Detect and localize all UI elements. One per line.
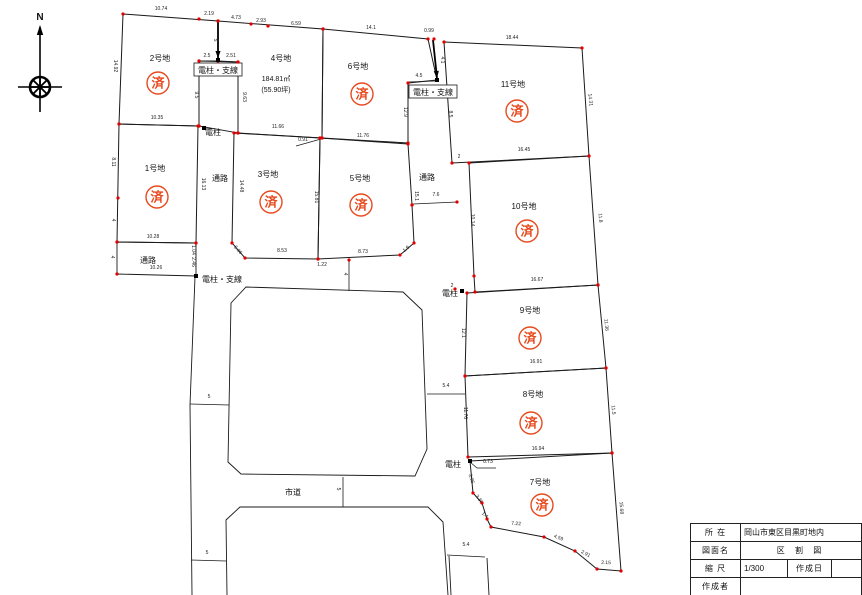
utility-pole-4 (468, 459, 472, 463)
dim-label-34: 8.5 (447, 111, 453, 118)
dim-label-17: 4 (110, 219, 116, 222)
survey-point (249, 22, 252, 25)
title-block: 所 在 岡山市東区目黒町地内 図面名 区 割 図 縮 尺 1/300 作成日 作… (690, 523, 862, 595)
plot-9-stamp-char: 済 (523, 331, 537, 346)
annotation-通路-1: 通路 (140, 255, 156, 265)
dim-label-44: 16.91 (530, 359, 543, 365)
dim-label-22: 11.76 (357, 133, 369, 139)
survey-point (453, 287, 456, 290)
dim-label-29: 8.53 (277, 248, 287, 254)
survey-point (587, 154, 590, 157)
annotation-電柱・支線-4: 電柱・支線 (194, 63, 242, 76)
scale-label: 縮 尺 (691, 560, 741, 578)
dim-label-33: 7.6 (433, 192, 440, 198)
block-upper (228, 287, 427, 476)
dim-label-46: 11.5 (610, 405, 617, 415)
survey-point (610, 451, 613, 454)
road-left-west-edge (190, 277, 195, 595)
utility-pole-0 (216, 58, 220, 62)
survey-point (320, 136, 323, 139)
plot-7-stamp-char: 済 (535, 498, 549, 513)
dim-label-21: 0.91 (298, 137, 308, 143)
plot-10-stamp-char: 済 (520, 224, 534, 239)
survey-point (406, 141, 409, 144)
annotation-label-2: 通路 (419, 172, 435, 182)
plot-1-label: 1号地 (145, 163, 165, 173)
dim-label-7: 18.44 (506, 35, 519, 41)
dim-label-25: 15.81 (313, 191, 319, 204)
plot-1-boundary (117, 124, 198, 243)
tick-line-1 (191, 560, 226, 561)
dim-label-20: 11.66 (272, 124, 284, 130)
dim-label-53: 2.91 (580, 549, 592, 559)
dim-label-0: 10.74 (155, 6, 168, 12)
tick-line-0 (190, 404, 229, 405)
annotation-市道-3: 市道 (285, 487, 301, 497)
plot-6-sold-stamp: 済 (351, 83, 373, 105)
tick-line-7 (408, 81, 435, 82)
dim-label-43: 11.36 (602, 319, 609, 332)
survey-point (465, 291, 468, 294)
survey-point (442, 40, 445, 43)
plot-6-stamp-char: 済 (355, 87, 369, 102)
plot-2-label: 2号地 (150, 53, 170, 63)
survey-point (485, 517, 488, 520)
annotation-label-1: 通路 (140, 255, 156, 265)
plot-7-label: 7号地 (530, 477, 550, 487)
dim-label-39: 11.8 (597, 213, 604, 223)
compass-n-label: N (36, 12, 43, 23)
tick-line-4 (447, 555, 485, 557)
dim-label-16: 8.11 (110, 157, 116, 167)
drawing-name-label: 図面名 (691, 542, 741, 560)
plot-2-stamp-char: 済 (151, 76, 165, 91)
author-value (741, 578, 862, 595)
survey-point (542, 535, 545, 538)
dim-label-5: 14.1 (366, 25, 376, 31)
survey-point (480, 501, 483, 504)
plot-4-label: 4号地 (271, 53, 291, 63)
annotation-label-6: 電柱・支線 (202, 274, 242, 284)
road-south-east-edge (487, 558, 489, 595)
dim-label-6: 0.99 (424, 28, 434, 34)
survey-point (604, 366, 607, 369)
dim-label-13: 9.5 (193, 92, 199, 99)
annotation-label-5: 電柱・支線 (413, 87, 453, 97)
survey-point (197, 124, 200, 127)
survey-point (197, 17, 200, 20)
plot-11-label: 11号地 (501, 79, 525, 89)
dim-label-62: 4 (342, 273, 348, 276)
title-row-location: 所 在 岡山市東区目黒町地内 (691, 524, 862, 542)
utility-pole-5 (194, 274, 198, 278)
plot-7: 7号地済 (470, 453, 621, 571)
plot-8-sold-stamp: 済 (520, 412, 542, 434)
annotation-通路-2: 通路 (419, 172, 435, 182)
survey-point (580, 46, 583, 49)
survey-point (596, 283, 599, 286)
plot-4-area-line-1: (55.90坪) (261, 86, 290, 94)
survey-point (194, 241, 197, 244)
dim-label-37: 2 (458, 154, 461, 160)
dim-label-27: 12.9 (402, 107, 408, 117)
plot-5-stamp-char: 済 (354, 198, 368, 213)
dim-label-19: 10.35 (151, 115, 164, 121)
annotation-label-3: 市道 (285, 487, 301, 497)
annotation-label-9: 電柱 (445, 459, 461, 469)
dim-label-10: 4.5 (416, 73, 423, 79)
dim-label-18: 4 (109, 256, 115, 259)
dim-label-31: 8.73 (358, 249, 368, 255)
plot-11-boundary (444, 42, 589, 163)
annotation-電柱-9: 電柱 (445, 459, 461, 469)
location-label: 所 在 (691, 524, 741, 542)
survey-point (117, 122, 120, 125)
plot-6-label: 6号地 (348, 61, 368, 71)
survey-point (232, 131, 235, 134)
dim-label-63: 10.28 (147, 234, 160, 240)
plot-1: 1号地済 (117, 124, 198, 243)
dim-label-4: 6.59 (291, 21, 301, 27)
survey-point (266, 24, 269, 27)
survey-point (619, 569, 622, 572)
scale-value: 1/300 (741, 560, 788, 578)
annotation-通路-0: 通路 (212, 173, 228, 183)
survey-point (410, 203, 413, 206)
dim-label-14: 9.63 (241, 92, 247, 102)
plot-1-stamp-char: 済 (150, 190, 164, 205)
block-lower (226, 507, 448, 595)
plot-8: 8号地済 (465, 368, 612, 457)
survey-point (467, 161, 470, 164)
plot-8-stamp-char: 済 (524, 416, 538, 431)
survey-point (426, 37, 429, 40)
guy-wire-arrow-0 (215, 51, 220, 58)
dim-label-64: 10.26 (150, 265, 163, 271)
survey-point (121, 12, 124, 15)
survey-point (115, 240, 118, 243)
dim-label-26: 15.1 (413, 191, 419, 201)
survey-point (472, 274, 475, 277)
annotation-電柱・支線-6: 電柱・支線 (202, 274, 242, 284)
dim-label-15: 14.92 (112, 60, 118, 73)
survey-point (471, 491, 474, 494)
plot-10: 10号地済 (469, 156, 598, 292)
compass-hub (37, 84, 42, 89)
plot-9-label: 9号地 (520, 305, 540, 315)
compass-arrow-icon (37, 25, 43, 35)
title-row-author: 作成者 (691, 578, 862, 595)
survey-point (316, 257, 319, 260)
dim-label-55: 15.68 (618, 501, 625, 514)
drawing-name-value: 区 割 図 (741, 542, 862, 560)
dim-label-9: 4.1 (439, 57, 445, 64)
survey-point (473, 290, 476, 293)
survey-point (347, 258, 350, 261)
plot-3: 3号地済 (232, 133, 320, 259)
dim-label-12: 2.51 (226, 53, 236, 59)
dim-label-51: 7.22 (511, 521, 521, 528)
dim-label-54: 2.15 (601, 560, 611, 566)
dim-label-1: 2.19 (204, 11, 214, 17)
dim-label-23: 16.13 (200, 178, 206, 191)
dim-label-57: 5 (208, 394, 211, 400)
plot-11-sold-stamp: 済 (506, 100, 528, 122)
date-value (832, 560, 862, 578)
plot-8-label: 8号地 (523, 389, 543, 399)
survey-point (412, 241, 415, 244)
author-label: 作成者 (691, 578, 741, 595)
annotation-label-7: 電柱 (205, 127, 221, 137)
dim-label-30: 1.22 (317, 262, 327, 268)
survey-point (236, 60, 239, 63)
survey-point (406, 81, 409, 84)
dim-label-35: 14.31 (586, 93, 593, 106)
annotation-電柱-7: 電柱 (205, 127, 221, 137)
survey-point (197, 59, 200, 62)
plot-9-sold-stamp: 済 (519, 327, 541, 349)
dim-label-60: 5.4 (443, 383, 450, 389)
survey-point (115, 272, 118, 275)
survey-point (463, 374, 466, 377)
survey-point (216, 19, 219, 22)
plot-3-sold-stamp: 済 (260, 191, 282, 213)
survey-point (236, 131, 239, 134)
plot-4-area-line-0: 184.81㎡ (262, 75, 290, 83)
road-south-west-edge (449, 556, 451, 595)
utility-pole-2 (435, 78, 439, 82)
survey-point (466, 455, 469, 458)
dim-label-65: 1.04 (190, 245, 196, 255)
location-value: 岡山市東区目黒町地内 (741, 524, 862, 542)
dim-label-38: 10.14 (469, 214, 475, 227)
plot-4: 4号地184.81㎡(55.90坪) (218, 21, 323, 138)
survey-point (230, 241, 233, 244)
survey-point (243, 256, 246, 259)
plot-10-sold-stamp: 済 (516, 220, 538, 242)
title-row-scale: 縮 尺 1/300 作成日 (691, 560, 862, 578)
plot-3-label: 3号地 (258, 169, 278, 179)
survey-point (398, 253, 401, 256)
dim-label-47: 16.94 (532, 446, 545, 452)
dim-label-59: 5 (335, 488, 341, 491)
survey-point (432, 37, 435, 40)
plot-5: 5号地済 (318, 138, 414, 259)
dim-label-45: 11.76 (462, 407, 468, 419)
plot-11-stamp-char: 済 (510, 104, 524, 119)
dim-label-3: 2.93 (256, 18, 266, 24)
dim-label-58: 5 (206, 550, 209, 556)
dim-label-61: 5.4 (463, 542, 470, 548)
survey-point (455, 200, 458, 203)
north-compass: N (18, 12, 62, 112)
dim-label-24: 14.48 (238, 180, 244, 193)
survey-point (321, 27, 324, 30)
survey-point (595, 567, 598, 570)
dim-label-2: 4.73 (231, 15, 241, 21)
plot-1-sold-stamp: 済 (146, 186, 168, 208)
survey-point (116, 196, 119, 199)
tick-line-6 (413, 202, 457, 204)
dim-label-56: 0.73 (483, 459, 493, 465)
dim-label-11: 2.5 (204, 53, 211, 59)
annotation-電柱・支線-5: 電柱・支線 (409, 85, 457, 98)
dim-label-40: 16.67 (531, 277, 544, 283)
plot-2-sold-stamp: 済 (147, 72, 169, 94)
utility-pole-3 (460, 289, 464, 293)
date-label: 作成日 (788, 560, 832, 578)
survey-point (450, 161, 453, 164)
plot-8-boundary (465, 368, 612, 457)
plot-11: 11号地済 (444, 42, 589, 163)
utility-pole-1 (202, 126, 206, 130)
title-row-drawing-name: 図面名 区 割 図 (691, 542, 862, 560)
dim-label-36: 16.45 (518, 147, 531, 153)
annotation-label-4: 電柱・支線 (198, 65, 238, 75)
dim-label-48: 3.96 (467, 473, 476, 484)
plot-3-stamp-char: 済 (264, 195, 278, 210)
dim-label-66: 2.46 (190, 257, 196, 267)
plot-5-label: 5号地 (350, 173, 370, 183)
survey-point (489, 525, 492, 528)
annotation-label-0: 通路 (212, 173, 228, 183)
plot-7-sold-stamp: 済 (531, 494, 553, 516)
plot-5-sold-stamp: 済 (350, 194, 372, 216)
dim-label-8: 5 (212, 39, 218, 42)
dim-label-42: 12.1 (460, 328, 466, 338)
plot-10-label: 10号地 (512, 201, 537, 211)
drawing-sheet: 1号地済2号地済3号地済4号地184.81㎡(55.90坪)5号地済6号地済7号… (0, 0, 862, 595)
subdivision-map: 1号地済2号地済3号地済4号地184.81㎡(55.90坪)5号地済6号地済7号… (0, 0, 862, 595)
survey-point (573, 549, 576, 552)
